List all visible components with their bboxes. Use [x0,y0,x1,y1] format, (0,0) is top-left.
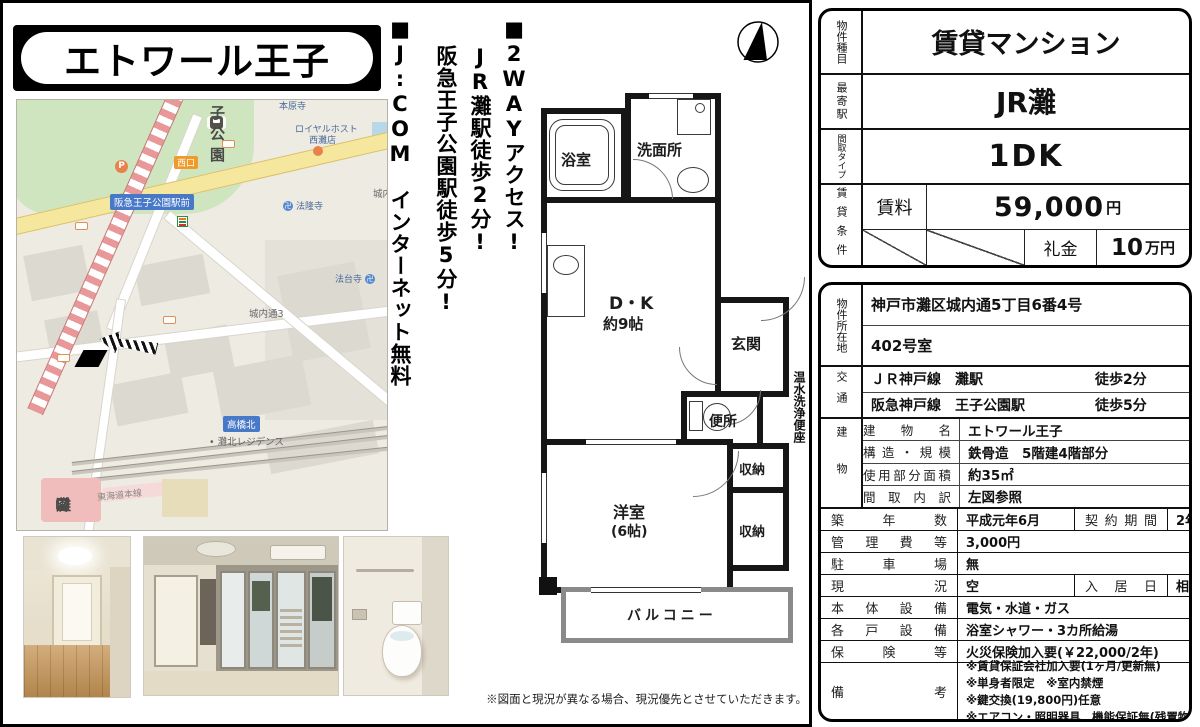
area-value: 約35㎡ [968,464,1014,484]
details-table: 物件所在地 神戸市灘区城内通5丁目6番4号 402号室 交通 ＪＲ神戸線 灘駅 … [818,282,1192,722]
row-label-type: 物件種目 [821,11,863,73]
left-panel: エトワール王子 [0,0,812,727]
north-arrow-icon [731,17,785,71]
row-built-year: 築年数 平成元年6月 契約期間 2年 [821,509,1189,531]
map-label-west-exit: 西口 [174,156,198,169]
map-building [134,254,210,307]
bus-stop-badge [57,354,70,362]
ceiling-light [58,547,92,565]
layout-type: 1DK [863,130,1189,183]
toilet-tank [392,601,422,625]
row-label-conditions: 賃貸条件 [821,185,863,265]
map-building [110,372,189,427]
layout-detail-label: 間取内訳 [863,486,960,507]
row-label-station: 最寄駅 [821,75,863,128]
row-management-fee: 管理費等 3,000円 [821,531,1189,553]
label-balcony: バルコニー [627,605,717,625]
remarks-list: ※賃貸保証会社加入要(1ヶ月/更新無) ※単身者限定 ※室内禁煙 ※鍵交換(19… [958,656,1192,723]
nearest-station: JR灘 [863,75,1189,128]
window [541,473,547,543]
selling-point: 阪急王子公園駅徒歩5分! [429,17,463,522]
access-walk-2: 徒歩5分 [1095,395,1181,415]
summary-table: 物件種目 賃貸マンション 最寄駅 JR灘 間取タイプ 1DK 賃貸条件 賃料 5… [818,8,1192,268]
selling-point: JR灘駅徒歩2分! [463,17,497,522]
rent-label: 賃料 [863,185,927,229]
floor-plan: 浴室 洗面所 D・K 約9帖 玄関 便所 収納 収納 洋室 (6帖) バルコニー… [531,83,815,668]
bus-stop-badge [163,316,176,324]
map-label-district: 城内通3 [249,306,284,320]
row-unit-facilities: 各戸設備 浴室シャワー・3カ所給湯 [821,619,1189,641]
map-label-ekimae: 阪急王子公園駅前 [110,194,194,210]
balcony-railing [280,607,302,647]
address-line1: 神戸市灘区城内通5丁目6番4号 [871,294,1082,315]
bus-stop-badge [222,140,235,148]
map-label-residence: • 灘北レジデンス [209,434,284,448]
property-flyer: エトワール王子 [0,0,1200,727]
bus-stop-badge [75,222,88,230]
label-storage-2: 収納 [739,521,765,540]
closet-door [154,575,198,667]
empty-diagonal-cell [927,229,1025,265]
label-dk-size: 約9帖 [603,313,643,334]
selling-point: ■2WAYアクセス! [497,17,531,522]
map-label-temple-top: 本原寺 [279,99,306,112]
wash-basin [677,167,709,193]
label-washlet-note: 温水洗浄便座 [791,371,808,581]
washing-machine-dial [695,103,705,113]
rent-value: 59,000円 [927,185,1189,229]
photo-living-room [143,536,339,696]
row-remarks: 備考 ※賃貸保証会社加入要(1ヶ月/更新無) ※単身者限定 ※室内禁煙 ※鍵交換… [821,663,1189,719]
washing-machine [677,99,711,135]
access-line-2: 阪急神戸線 王子公園駅 [871,395,1025,415]
structure-label: 構造・規模 [863,441,960,462]
structural-column [539,577,557,595]
area-label: 使用部分面積 [863,464,960,485]
empty-diagonal-cell [863,229,927,265]
label-dk: D・K [609,289,653,314]
row-label-layout: 間取タイプ [821,130,863,183]
building-name-label: 建物名 [863,419,960,440]
row-current-status: 現況 空 入居日 相談 [821,575,1189,597]
label-storage-1: 収納 [739,459,765,478]
photo-toilet [343,536,449,696]
closet-opening [200,579,216,645]
location-map: P 本原寺 王子公園 ロイヤルホスト 西灘店 西口 阪急王子公園駅前 卍 法隆寺… [16,99,388,531]
kitchen-sink [553,255,579,275]
towel-bar [356,569,414,572]
property-title: エトワール王子 [21,32,373,84]
restaurant-icon [313,146,323,156]
air-conditioner [270,545,326,560]
map-label-horyuji: 卍 法隆寺 [283,199,323,212]
seven-eleven-icon [177,216,188,227]
pendant-light [196,541,236,557]
map-label-restaurant2: 西灘店 [309,133,336,146]
paper-holder [352,609,367,620]
map-label-nada-station: 灘 [53,498,72,511]
disclaimer-text: ※図面と現況が異なる場合、現況優先とさせていただきます。 [443,691,807,707]
row-parking: 駐車場 無 [821,553,1189,575]
window-view-building [252,581,270,611]
row-label-access: 交通 [821,367,863,417]
row-label-location: 物件所在地 [821,285,863,365]
row-main-facilities: 本体設備 電気・水道・ガス [821,597,1189,619]
row-label-building: 建物 [821,419,863,507]
parking-icon: P [115,160,128,173]
toilet-tank [689,401,703,431]
window-view-building [312,577,332,621]
property-title-box: エトワール王子 [13,25,381,91]
label-western: 洋室 [613,499,645,523]
window [591,587,701,593]
label-toilet: 便所 [709,411,737,431]
key-money-value: 10万円 [1097,229,1189,265]
selling-points: ■2WAYアクセス! JR灘駅徒歩2分! 阪急王子公園駅徒歩5分! ■J:COM… [391,17,531,522]
structure-value: 鉄骨造 5階建4階部分 [968,442,1108,462]
temple-icon: 卍 [283,201,293,211]
layout-detail-value: 左図参照 [968,486,1022,506]
label-washroom: 洗面所 [637,139,682,160]
selling-point: ■J:COM インターネット無料 [383,17,417,522]
map-label-ojikoen-station: 王子公園 [207,116,226,129]
label-entrance: 玄関 [731,333,761,354]
property-pointer-arrow [97,327,159,362]
address-line2: 402号室 [871,335,932,356]
map-building [162,479,208,517]
access-line-1: ＪＲ神戸線 灘駅 [871,369,983,389]
building-name: エトワール王子 [968,420,1063,440]
photo-interior-room [23,536,131,698]
property-type: 賃貸マンション [863,11,1189,73]
access-walk-1: 徒歩2分 [1095,369,1181,389]
window [586,439,676,445]
label-western-size: (6帖) [611,521,648,541]
temple-icon: 卍 [365,274,375,284]
map-label-crossing: 高橋北 [223,416,260,432]
key-money-label: 礼金 [1025,229,1097,265]
map-label-hodaiji: 法台寺 卍 [335,272,375,285]
label-bath: 浴室 [561,149,591,170]
rent-conditions-grid: 賃料 59,000円 礼金 10万円 [863,185,1189,265]
